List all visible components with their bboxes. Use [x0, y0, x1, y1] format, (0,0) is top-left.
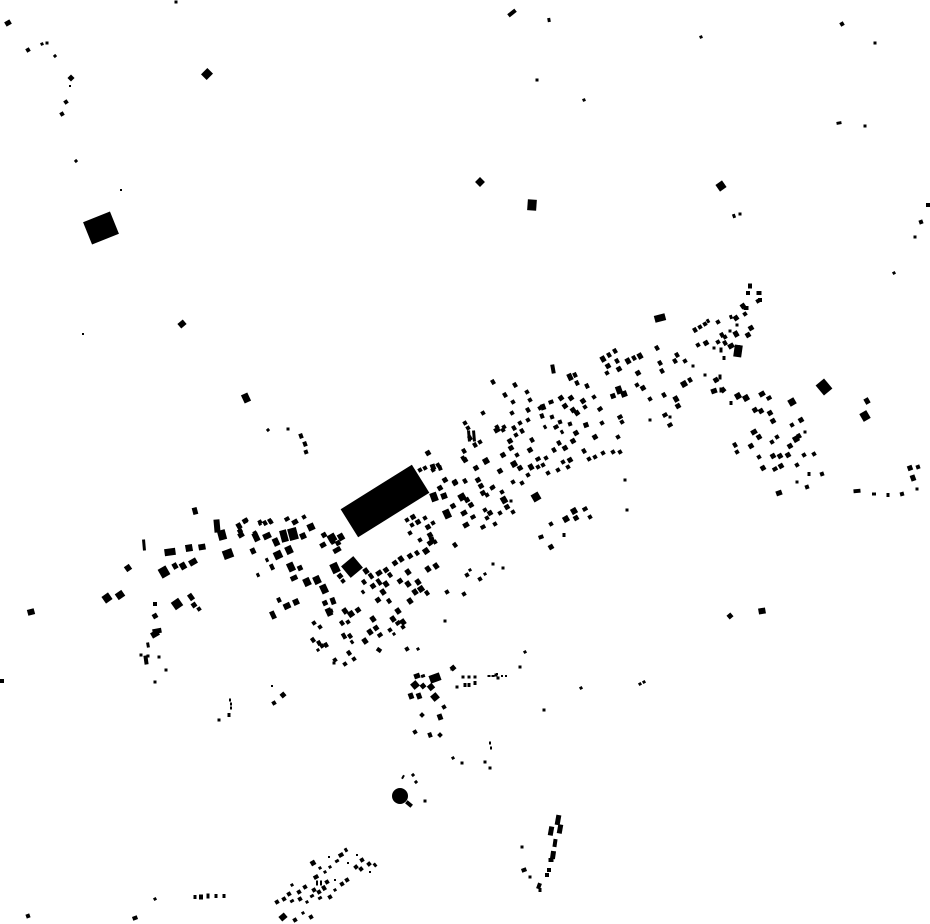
figure-ground-map: [0, 0, 930, 924]
building-footprint: [461, 762, 464, 765]
map-canvas: [0, 0, 930, 924]
building-footprint: [153, 602, 157, 606]
building-footprint: [519, 666, 522, 669]
building-footprint: [808, 472, 811, 476]
building-footprint: [468, 676, 471, 679]
building-footprint: [505, 675, 507, 677]
building-footprint: [215, 894, 218, 898]
building-footprint: [154, 681, 157, 684]
building-footprint: [489, 767, 492, 770]
building-footprint: [82, 333, 84, 335]
building-footprint: [492, 563, 495, 566]
building-footprint: [496, 673, 498, 675]
building-footprint: [510, 500, 513, 503]
building-footprint: [69, 85, 71, 87]
building-footprint: [199, 895, 203, 900]
building-footprint: [474, 681, 477, 685]
building-footprint: [287, 428, 290, 431]
building-footprint: [492, 675, 495, 677]
building-footprint: [185, 544, 193, 552]
building-footprint: [424, 800, 427, 803]
building-footprint: [230, 707, 232, 710]
building-footprint: [864, 125, 867, 128]
building-footprint: [874, 42, 877, 45]
building-footprint: [739, 213, 742, 216]
building-footprint: [916, 488, 919, 491]
building-footprint: [914, 236, 917, 239]
building-footprint: [229, 699, 231, 702]
building-footprint: [527, 199, 537, 211]
landmark-circles-layer: [392, 788, 408, 804]
building-footprint: [489, 742, 491, 745]
building-footprint: [545, 873, 549, 877]
building-footprint: [529, 876, 532, 879]
building-footprint: [649, 419, 652, 422]
building-footprint: [369, 871, 371, 873]
building-footprint: [563, 533, 566, 537]
building-footprint: [230, 703, 232, 706]
building-footprint: [730, 401, 733, 405]
building-footprint: [140, 654, 143, 657]
building-footprint: [456, 686, 459, 689]
building-footprint: [713, 347, 716, 350]
building-footprint: [198, 543, 206, 550]
building-footprint: [468, 683, 471, 687]
building-footprint: [120, 189, 122, 191]
building-footprint: [333, 662, 336, 665]
building-footprint: [887, 493, 890, 497]
building-footprint: [194, 895, 197, 899]
building-footprint: [736, 324, 739, 327]
building-footprint: [704, 374, 707, 377]
building-footprint: [0, 679, 4, 683]
building-footprint: [720, 348, 723, 353]
building-footprint: [758, 607, 766, 614]
building-footprint: [218, 719, 221, 722]
building-footprint: [748, 284, 752, 289]
building-footprint: [872, 493, 876, 496]
building-footprint: [462, 676, 465, 679]
building-footprint: [539, 888, 542, 892]
building-footprint: [624, 479, 627, 482]
building-footprint: [626, 509, 629, 512]
building-footprint: [543, 709, 546, 712]
building-footprint: [490, 747, 492, 750]
building-footprint: [746, 291, 750, 295]
building-footprint: [46, 42, 49, 45]
building-footprint: [497, 677, 500, 680]
building-footprint: [501, 675, 503, 677]
building-footprint: [484, 761, 487, 764]
building-footprint: [502, 567, 505, 570]
building-footprint: [729, 330, 732, 333]
building-footprint: [669, 416, 672, 419]
building-footprint: [926, 203, 930, 207]
building-footprint: [320, 881, 322, 886]
building-footprint: [796, 481, 799, 484]
landmark-circle: [392, 788, 408, 804]
building-footprint: [536, 79, 539, 82]
building-footprint: [223, 894, 226, 898]
building-footprint: [488, 675, 491, 677]
building-footprint: [175, 1, 178, 4]
building-footprint: [464, 683, 467, 687]
building-footprint: [804, 431, 807, 434]
building-footprint: [547, 868, 551, 872]
building-footprint: [271, 685, 273, 687]
building-footprint: [316, 881, 318, 886]
building-footprint: [207, 894, 210, 899]
building-footprint: [549, 858, 554, 862]
building-footprint: [474, 676, 477, 679]
building-footprint: [347, 862, 349, 864]
building-footprint: [853, 489, 860, 494]
building-footprint: [158, 656, 161, 659]
building-footprint: [723, 356, 726, 360]
building-footprint: [356, 854, 358, 856]
building-footprint: [692, 365, 695, 368]
building-footprint: [334, 879, 336, 881]
building-footprint: [165, 669, 168, 672]
building-footprint: [228, 713, 231, 717]
building-footprint: [328, 856, 330, 858]
building-footprint: [719, 375, 722, 380]
building-footprint: [521, 846, 524, 849]
building-footprint: [757, 291, 762, 295]
building-footprint: [444, 620, 447, 623]
